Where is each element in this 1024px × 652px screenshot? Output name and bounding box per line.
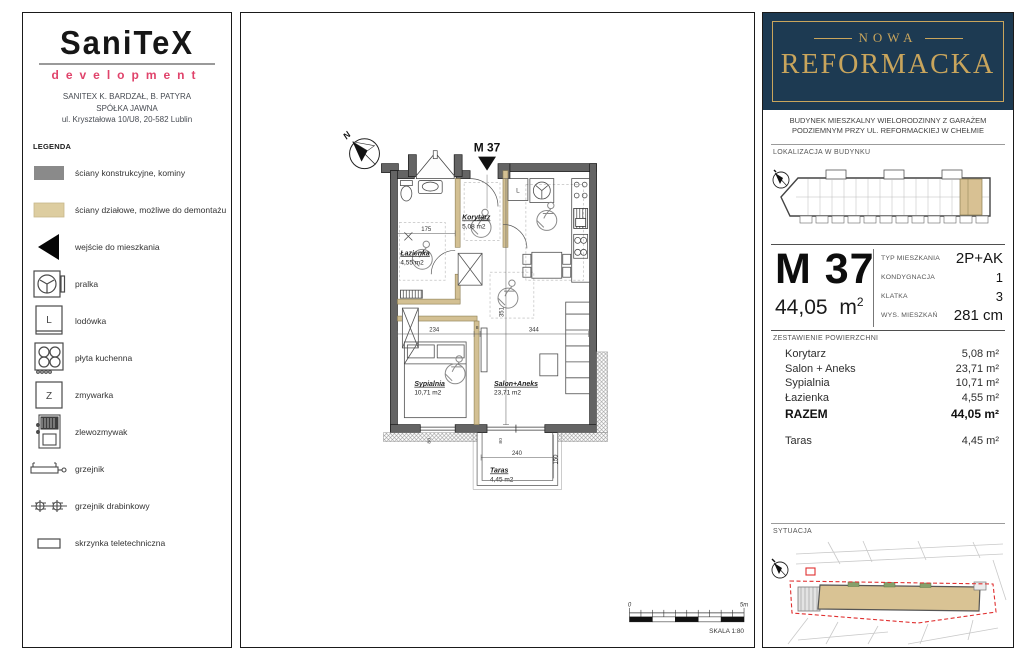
spec-height: WYS. MIESZKAŃ 281 cm (881, 306, 1003, 325)
svg-text:80: 80 (426, 438, 432, 444)
scale-bar: 0 5m SKALA 1:80 (628, 602, 748, 634)
dishwasher-icon: Z (23, 378, 75, 412)
floor-plan-sheet: { "colors": { "brand_navy": "#1d3a52", "… (0, 0, 1024, 650)
legend-item-washer: pralka (23, 266, 231, 303)
logo-text: SaniTeX (60, 24, 194, 63)
unit-total-area: 44,05 m2 (775, 295, 864, 320)
company-line-1: SANITEX K. BARDZAŁ, B. PATYRA (23, 91, 231, 103)
svg-text:4,45 m2: 4,45 m2 (490, 476, 514, 483)
kitchen-sink-icon (23, 413, 75, 451)
unit-info-panel: NOWA REFORMACKA BUDYNEK MIESZKALNY WIELO… (762, 12, 1014, 648)
building-description: BUDYNEK MIESZKALNY WIELORODZINNY Z GARAŻ… (769, 116, 1007, 136)
floor-plan-drawing: N M 37 (241, 13, 754, 647)
spec-type: TYP MIESZKANIA 2P+AK (881, 249, 1003, 268)
svg-text:Taras: Taras (490, 467, 508, 474)
total-row: RAZEM 44,05 m² (785, 407, 999, 421)
svg-text:4,55 m2: 4,55 m2 (400, 259, 424, 266)
svg-text:Korytarz: Korytarz (462, 214, 491, 221)
areas-table: Korytarz 5,08 m² Salon + Aneks 23,71 m² … (785, 347, 999, 405)
cooktop-icon (23, 340, 75, 376)
areas-title: ZESTAWIENIE POWIERZCHNI (773, 335, 878, 342)
wall-structural-swatch-icon (23, 156, 75, 190)
legend-item-structural-walls: ściany konstrukcyjne, kominy (23, 155, 231, 192)
svg-text:Sypialnia: Sypialnia (414, 381, 445, 388)
highlighted-unit (960, 179, 982, 215)
company-line-2: SPÓŁKA JAWNA (23, 103, 231, 115)
radiator-icon (23, 457, 75, 481)
developer-logo: SaniTeX development (23, 13, 231, 82)
svg-text:80: 80 (498, 438, 504, 444)
terrace (473, 433, 562, 490)
shaft-bay (416, 151, 454, 179)
svg-text:5m: 5m (740, 602, 748, 608)
floor-plan-panel: N M 37 (240, 12, 755, 648)
legend-item-telecom-box: skrzynka teletechniczna (23, 525, 231, 562)
area-row-sypialnia: Sypialnia 10,71 m² (785, 376, 999, 391)
washing-machine-icon (23, 267, 75, 301)
wall-partition-swatch-icon (23, 193, 75, 227)
building-locator-map (768, 160, 1008, 245)
svg-text:351: 351 (499, 306, 505, 317)
svg-text:240: 240 (512, 451, 523, 457)
entrance-arrow-icon (23, 230, 75, 264)
location-title: LOKALIZACJA W BUDYNKU (773, 149, 870, 156)
spec-staircase: KLATKA 3 (881, 287, 1003, 306)
svg-text:175: 175 (421, 227, 432, 233)
svg-text:23,71 m2: 23,71 m2 (494, 390, 521, 397)
area-row-lazienka: Łazienka 4,55 m² (785, 391, 999, 406)
compass-icon: N (341, 129, 380, 168)
legend-title: LEGENDA (33, 142, 231, 151)
legend-item-cooktop: płyta kuchenna (23, 340, 231, 377)
site-plan-map (768, 540, 1008, 645)
company-line-3: ul. Kryształowa 10/U8, 20-582 Lublin (23, 114, 231, 126)
legend-item-ladder-radiator: grzejnik drabinkowy (23, 488, 231, 525)
legend-panel: SaniTeX development SANITEX K. BARDZAŁ, … (22, 12, 232, 648)
area-row-korytarz: Korytarz 5,08 m² (785, 347, 999, 362)
area-row-salon: Salon + Aneks 23,71 m² (785, 362, 999, 377)
logo-rule (39, 63, 215, 65)
svg-text:N: N (341, 129, 353, 141)
legend-item-radiator: grzejnik (23, 451, 231, 488)
spec-floor: KONDYGNACJA 1 (881, 268, 1003, 287)
fridge-icon: L (23, 304, 75, 338)
locator-compass-icon (773, 170, 789, 188)
svg-text:234: 234 (429, 327, 440, 333)
legend-item-partition-walls: ściany działowe, możliwe do demontażu (23, 192, 231, 229)
legend-item-fridge: L lodówka (23, 303, 231, 340)
entrance-marker-icon (478, 157, 496, 171)
legend-item-entrance: wejście do mieszkania (23, 229, 231, 266)
company-address: SANITEX K. BARDZAŁ, B. PATYRA SPÓŁKA JAW… (23, 91, 231, 126)
site-compass-icon (772, 559, 788, 578)
svg-text:10,71 m2: 10,71 m2 (414, 390, 441, 397)
legend-item-sink: zlewozmywak (23, 414, 231, 451)
legend-list: ściany konstrukcyjne, kominy ściany dzia… (23, 155, 231, 562)
svg-text:150: 150 (553, 454, 559, 465)
svg-text:Łazienka: Łazienka (399, 250, 430, 257)
site-building (798, 582, 986, 611)
brand-main: REFORMACKA (763, 49, 1013, 81)
svg-text:Salon+Aneks: Salon+Aneks (494, 381, 538, 388)
svg-text:L: L (46, 315, 52, 326)
svg-text:5,08 m2: 5,08 m2 (462, 223, 486, 230)
ladder-radiator-icon (23, 494, 75, 518)
telecom-box-icon (23, 531, 75, 555)
unit-summary: M 37 44,05 m2 TYP MIESZKANIA 2P+AK KONDY… (773, 249, 1003, 327)
svg-text:8: 8 (476, 325, 479, 331)
unit-code: M 37 (775, 245, 875, 294)
legend-item-dishwasher: Z zmywarka (23, 377, 231, 414)
terrace-row: Taras 4,45 m² (785, 435, 999, 447)
svg-text:M 37: M 37 (474, 141, 501, 155)
svg-text:0: 0 (628, 602, 632, 608)
situation-title: SYTUACJA (773, 528, 812, 535)
svg-text:SKALA 1:80: SKALA 1:80 (709, 628, 744, 635)
logo-subtitle: development (23, 68, 231, 82)
dimension-labels: 234 8 344 351 175 240 150 80 80 (421, 227, 559, 465)
svg-text:344: 344 (529, 327, 540, 333)
fridge-label: L (516, 188, 520, 195)
svg-text:Z: Z (46, 391, 52, 402)
brand-top: NOWA (859, 30, 918, 46)
unit-specs: TYP MIESZKANIA 2P+AK KONDYGNACJA 1 KLATK… (873, 249, 1003, 327)
brand-banner: NOWA REFORMACKA (763, 13, 1013, 110)
